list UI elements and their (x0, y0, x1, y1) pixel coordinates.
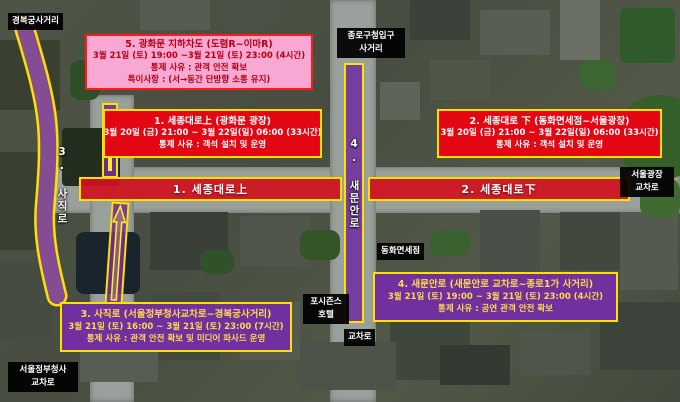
legend-box-gwanghwamun-underpass: 5. 광화문 지하차도 (도렴R~이마R) 3월 21일 (토) 19:00 ~… (85, 34, 313, 90)
traffic-control-map: 3. 사직로 1. 세종대로上 2. 세종대로下 4. 새문안로 경복궁사거리 … (0, 0, 680, 402)
map-terrain-block (140, 0, 210, 30)
legend-line: 통제 사유 : 관객 안전 확보 (151, 63, 247, 75)
legend-line: 4. 새문안로 (새문안로 교차로~종로1가 사거리) (398, 278, 593, 291)
legend-line: 5. 광화문 지하차도 (도렴R~이마R) (125, 38, 273, 51)
legend-line: 1. 세종대로上 (광화문 광장) (154, 115, 271, 128)
legend-line: 2. 세종대로 下 (동화면세점~서울광장) (470, 115, 630, 128)
legend-line: 3월 21일 (토) 19:00 ~ 3월 21일 (토) 23:00 (4시간… (388, 292, 603, 304)
sajik-ro-band-label: 3. 사직로 (55, 146, 70, 226)
legend-line: 3월 21일 (토) 16:00 ~ 3월 21일 (토) 23:00 (7시간… (68, 322, 283, 334)
legend-line: 통제 사유 : 객석 설치 및 운영 (159, 140, 266, 152)
place-label-junction: 교차로 (344, 329, 375, 346)
place-label-seoul-plaza-junction: 서울광장 교차로 (620, 167, 674, 197)
sejong-lower-band-label: 2. 세종대로下 (370, 179, 628, 199)
legend-line: 통제 사유 : 객석 설치 및 운영 (496, 140, 603, 152)
place-label-donghwa-dutyfree: 동화면세점 (377, 243, 424, 260)
map-terrain-block (300, 342, 396, 390)
map-terrain-block (430, 60, 490, 100)
place-label-jongno-office-junction: 종로구청입구 사거리 (337, 28, 405, 58)
legend-line: 3. 사직로 (서울정부청사교차로~경복궁사거리) (81, 308, 272, 321)
legend-box-sajikro: 3. 사직로 (서울정부청사교차로~경복궁사거리) 3월 21일 (토) 16:… (60, 302, 292, 352)
legend-line: 통제 사유 : 관객 안전 확보 및 미디어 파사드 운영 (87, 334, 266, 346)
map-terrain-block (580, 60, 615, 90)
map-terrain-block (430, 230, 470, 256)
map-terrain-block (0, 152, 40, 250)
map-terrain-block (380, 82, 420, 120)
map-terrain-block (410, 0, 470, 40)
map-terrain-block (440, 345, 510, 385)
place-label-four-seasons-hotel: 포시즌스 호텔 (303, 294, 349, 324)
sejong-lower-closure-band: 2. 세종대로下 (368, 177, 630, 201)
legend-box-sejong-upper: 1. 세종대로上 (광화문 광장) 3월 20일 (금) 21:00 ~ 3월 … (103, 109, 322, 158)
saemunan-ro-band-label: 4. 새문안로 (347, 138, 362, 230)
map-terrain-block (300, 230, 340, 260)
sejong-upper-band-label: 1. 세종대로上 (81, 179, 340, 199)
map-terrain-block (200, 250, 234, 274)
map-terrain-block (0, 40, 60, 110)
legend-box-sejong-lower: 2. 세종대로 下 (동화면세점~서울광장) 3월 20일 (금) 21:00 … (437, 109, 662, 158)
legend-line: 3월 20일 (금) 21:00 ~ 3월 22일(일) 06:00 (33시간… (103, 128, 321, 140)
sejong-upper-closure-band: 1. 세종대로上 (79, 177, 342, 201)
legend-line: 3월 21일 (토) 19:00 ~3월 21일 (토) 23:00 (4시간) (93, 51, 305, 63)
map-terrain-block (480, 10, 550, 55)
map-terrain-block (560, 0, 600, 60)
place-label-gov-complex-junction: 서울정부청사 교차로 (8, 362, 78, 392)
legend-line: 통제 사유 : 공연 관객 안전 확보 (438, 304, 553, 316)
map-terrain-block (620, 8, 675, 63)
map-terrain-block (620, 212, 678, 290)
legend-box-saemunanro: 4. 새문안로 (새문안로 교차로~종로1가 사거리) 3월 21일 (토) 1… (373, 272, 618, 322)
legend-line: 특이사항 : (서→동간 단방향 소통 유지) (128, 75, 271, 87)
map-terrain-block (520, 330, 590, 375)
map-terrain-block (220, 5, 280, 27)
map-terrain-block (0, 262, 50, 340)
place-label-gyeongbokgung-junction: 경복궁사거리 (8, 13, 63, 30)
legend-line: 3월 20일 (금) 21:00 ~ 3월 22일(일) 06:00 (33시간… (440, 128, 658, 140)
